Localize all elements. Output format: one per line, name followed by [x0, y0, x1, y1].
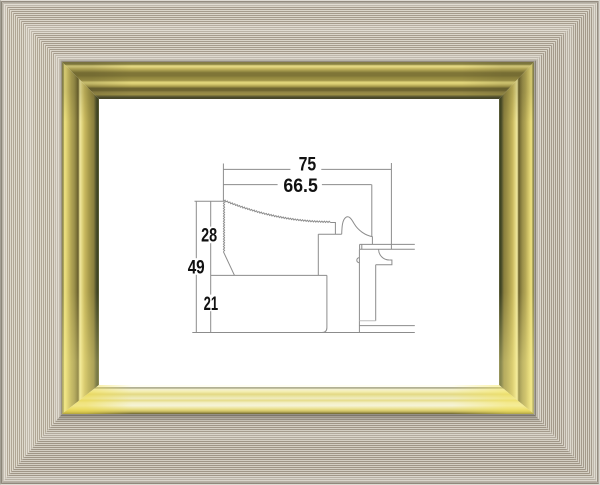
svg-text:75: 75: [299, 154, 317, 175]
svg-text:49: 49: [188, 258, 205, 279]
svg-text:28: 28: [201, 226, 217, 247]
svg-text:21: 21: [204, 294, 219, 315]
svg-text:66.5: 66.5: [283, 176, 318, 197]
